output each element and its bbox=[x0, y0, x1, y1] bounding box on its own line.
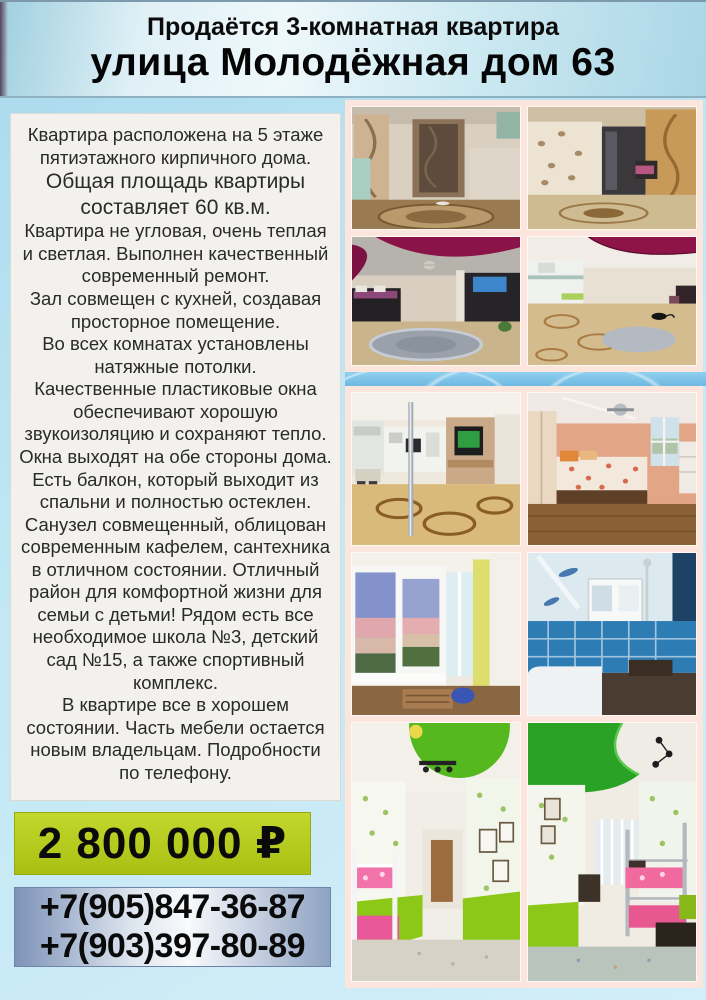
description-paragraph: Квартира расположена на 5 этаже пятиэтаж… bbox=[19, 124, 332, 169]
photo-bedroom bbox=[528, 393, 696, 545]
description-paragraph: Квартира не угловая, очень теплая и свет… bbox=[19, 220, 332, 288]
kids-room-1-image bbox=[352, 723, 520, 981]
photo-kitchen-living-room bbox=[528, 237, 696, 365]
corridor-image bbox=[528, 107, 696, 229]
bathroom-image bbox=[528, 553, 696, 715]
flyer-address: улица Молодёжная дом 63 bbox=[90, 41, 615, 86]
photo-kitchen bbox=[352, 393, 520, 545]
description-paragraph: Зал совмещен с кухней, создавая просторн… bbox=[19, 288, 332, 333]
balcony-image bbox=[352, 553, 520, 715]
description-paragraph: В квартире все в хорошем состоянии. Част… bbox=[19, 694, 332, 784]
living-room-image bbox=[352, 237, 520, 365]
header: Продаётся 3-комнатная квартира улица Мол… bbox=[0, 0, 706, 98]
phone-number-2: +7(903)397-80-89 bbox=[40, 927, 305, 966]
description-paragraph: Есть балкон, который выходит из спальни … bbox=[19, 469, 332, 514]
price-banner: 2 800 000 ₽ bbox=[14, 812, 311, 875]
photo-grid-bottom bbox=[345, 386, 703, 988]
photo-bathroom bbox=[528, 553, 696, 715]
description-paragraph: Общая площадь квартиры составляет 60 кв.… bbox=[19, 169, 332, 220]
kitchen-living-room-image bbox=[528, 237, 696, 365]
photo-balcony bbox=[352, 553, 520, 715]
description-paragraph: Санузел совмещенный, облицован современн… bbox=[19, 514, 332, 695]
divider-strip bbox=[345, 372, 706, 386]
photo-collage bbox=[345, 98, 706, 1000]
description-paragraph: Окна выходят на обе стороны дома. bbox=[19, 446, 332, 469]
bedroom-image bbox=[528, 393, 696, 545]
phone-panel: +7(905)847-36-87 +7(903)397-80-89 bbox=[14, 887, 331, 967]
photo-kids-room-2 bbox=[528, 723, 696, 981]
hallway-entrance-image bbox=[352, 107, 520, 229]
photo-corridor bbox=[528, 107, 696, 229]
phone-number-1: +7(905)847-36-87 bbox=[40, 888, 305, 927]
flyer: Продаётся 3-комнатная квартира улица Мол… bbox=[0, 0, 706, 1000]
photo-hallway-entrance bbox=[352, 107, 520, 229]
price-value: 2 800 000 ₽ bbox=[38, 818, 288, 869]
photo-living-room bbox=[352, 237, 520, 365]
photo-kids-room-1 bbox=[352, 723, 520, 981]
flyer-title: Продаётся 3-комнатная квартира bbox=[147, 14, 559, 42]
kids-room-2-image bbox=[528, 723, 696, 981]
kitchen-image bbox=[352, 393, 520, 545]
description-panel: Квартира расположена на 5 этаже пятиэтаж… bbox=[10, 113, 341, 801]
description-paragraph: Во всех комнатах установлены натяжные по… bbox=[19, 333, 332, 378]
photo-grid-top bbox=[345, 100, 703, 372]
info-column: Квартира расположена на 5 этаже пятиэтаж… bbox=[0, 98, 345, 1000]
description-paragraph: Качественные пластиковые окна обеспечива… bbox=[19, 378, 332, 446]
